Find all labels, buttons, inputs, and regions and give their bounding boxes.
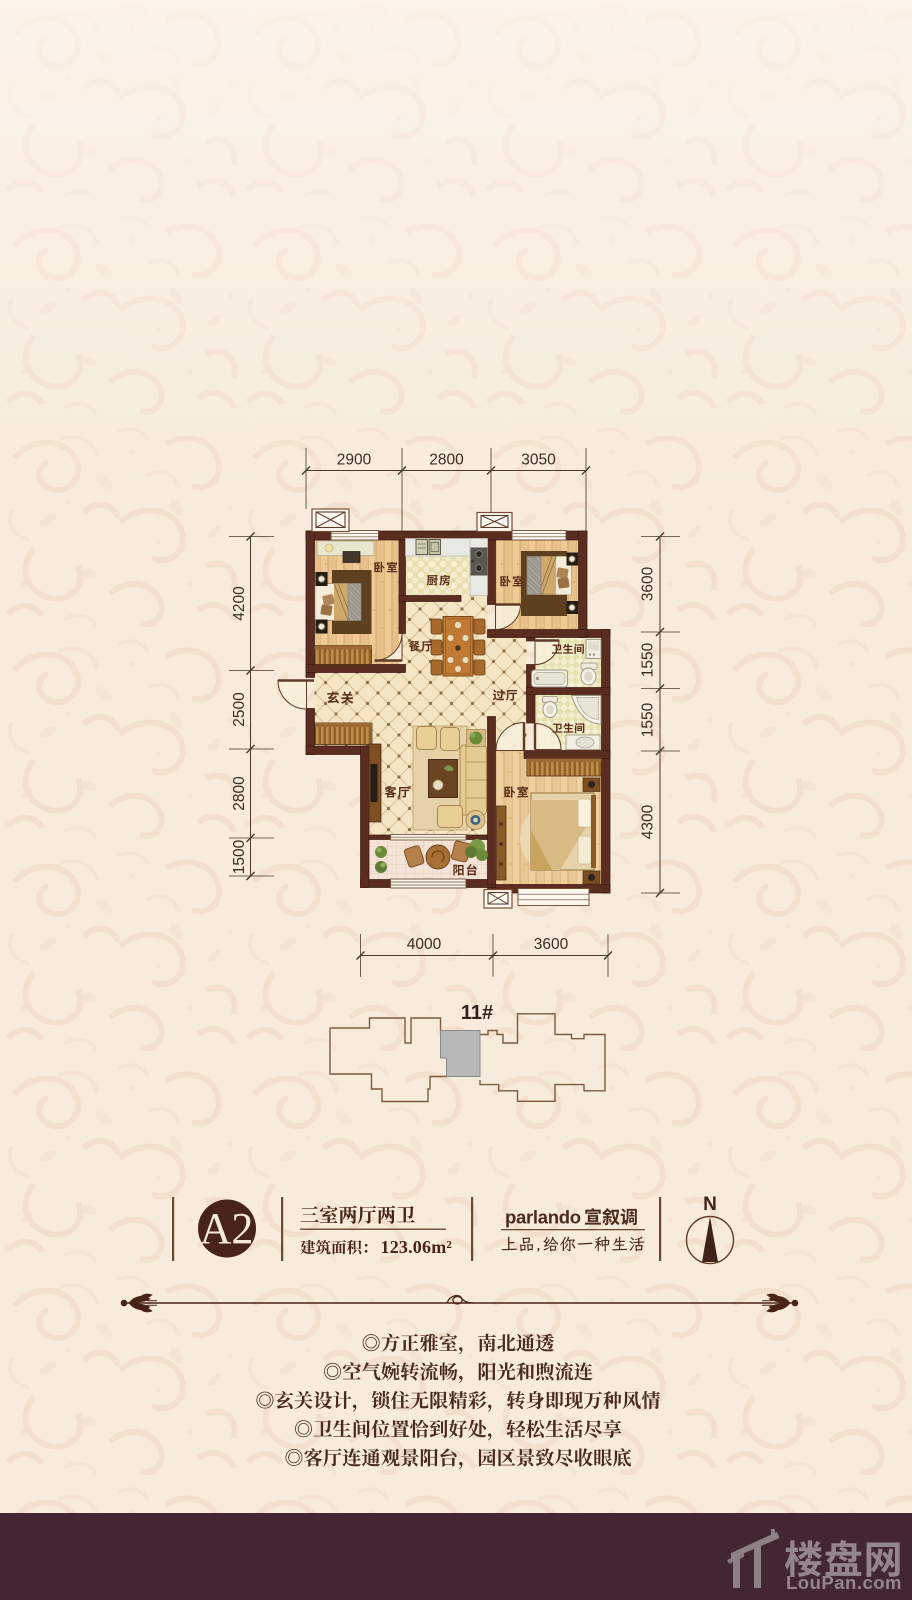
svg-text:2500: 2500 — [231, 692, 248, 727]
svg-text:3600: 3600 — [534, 936, 569, 953]
svg-text:4000: 4000 — [407, 936, 442, 953]
svg-text:parlando: parlando — [505, 1207, 581, 1228]
svg-text:2900: 2900 — [337, 452, 372, 469]
svg-text:4300: 4300 — [640, 804, 657, 839]
svg-text:3050: 3050 — [521, 452, 556, 469]
svg-text:11#: 11# — [461, 1002, 493, 1024]
svg-text:1550: 1550 — [640, 702, 657, 737]
svg-text:3600: 3600 — [640, 566, 657, 601]
svg-text:2800: 2800 — [429, 452, 464, 469]
svg-text:2800: 2800 — [231, 776, 248, 811]
svg-text:LouPan.com: LouPan.com — [786, 1572, 902, 1593]
svg-text:1550: 1550 — [640, 642, 657, 677]
svg-text:123.06m²: 123.06m² — [381, 1237, 453, 1257]
svg-text:A2: A2 — [200, 1204, 254, 1253]
svg-text:N: N — [703, 1194, 717, 1215]
svg-text:1500: 1500 — [231, 839, 248, 874]
svg-text:4200: 4200 — [231, 586, 248, 621]
